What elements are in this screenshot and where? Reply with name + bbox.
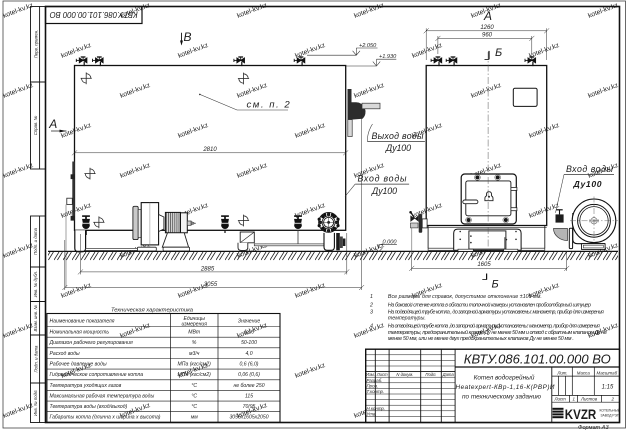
svg-text:1605: 1605: [477, 262, 491, 268]
svg-text:Разраб.: Разраб.: [367, 378, 383, 383]
svg-text:см. п. 2: см. п. 2: [247, 100, 292, 111]
svg-text:Ду100: Ду100: [371, 186, 397, 196]
svg-text:Б: Б: [495, 47, 502, 59]
svg-text:N докум.: N докум.: [396, 372, 413, 377]
svg-text:м3/ч: м3/ч: [189, 351, 200, 357]
svg-text:1: 1: [370, 294, 373, 300]
svg-text:4: 4: [370, 324, 373, 330]
svg-text:1260: 1260: [480, 25, 494, 31]
svg-text:Подп. и дата: Подп. и дата: [33, 345, 38, 373]
svg-text:мм: мм: [191, 415, 198, 421]
svg-text:0,06 (0,6): 0,06 (0,6): [238, 372, 260, 378]
svg-text:А: А: [483, 9, 492, 23]
svg-text:Максимальная рабочая температу: Максимальная рабочая температура воды: [50, 393, 155, 399]
svg-text:Температура уходящих газов: Температура уходящих газов: [50, 383, 122, 389]
svg-text:Расход воды: Расход воды: [50, 351, 80, 357]
svg-text:115: 115: [245, 393, 253, 399]
svg-text:Все размеры для справок, допус: Все размеры для справок, допустимое откл…: [388, 294, 542, 300]
svg-text:Номинальная мощность: Номинальная мощность: [50, 330, 110, 336]
svg-text:Справ. №: Справ. №: [33, 115, 38, 135]
svg-text:Температура воды (вход/выход): Температура воды (вход/выход): [50, 404, 128, 410]
svg-text:+1.930: +1.930: [379, 54, 397, 60]
svg-text:измерения: измерения: [181, 321, 207, 327]
svg-text:по техническому заданию: по техническому заданию: [462, 392, 541, 400]
svg-text:В: В: [184, 30, 192, 44]
svg-text:Ду100: Ду100: [573, 179, 602, 189]
svg-text:Гидравлическое сопротивление к: Гидравлическое сопротивление котла: [50, 372, 144, 378]
svg-text:1:15: 1:15: [602, 384, 614, 390]
svg-text:Инв. № дубл.: Инв. № дубл.: [33, 271, 38, 297]
svg-text:Пров.: Пров.: [367, 383, 379, 388]
svg-text:КОТЕЛЬНЫЙ: КОТЕЛЬНЫЙ: [600, 409, 621, 413]
svg-text:Н.контр.: Н.контр.: [367, 406, 386, 411]
svg-text:На подводящей трубе котла ,: На подводящей трубе котла , до запорной …: [388, 309, 604, 316]
svg-text:%: %: [192, 340, 197, 346]
svg-text:Утв.: Утв.: [367, 412, 377, 417]
svg-text:°С: °С: [191, 393, 197, 399]
svg-text:Б: Б: [492, 279, 499, 291]
svg-text:2: 2: [369, 302, 373, 308]
svg-text:МПа (кгс/см2): МПа (кгс/см2): [178, 362, 212, 368]
svg-text:Дата: Дата: [442, 372, 455, 377]
svg-text:Масштаб: Масштаб: [597, 370, 618, 375]
svg-text:КВТУ.086.101.00.000 ВО: КВТУ.086.101.00.000 ВО: [464, 351, 611, 366]
svg-text:0,6 (6,0): 0,6 (6,0): [240, 362, 259, 368]
svg-text:А: А: [48, 117, 57, 131]
svg-text:°С: °С: [191, 404, 197, 410]
svg-text:температуры.: температуры.: [388, 316, 426, 322]
svg-text:Техническая характеристика: Техническая характеристика: [111, 308, 194, 314]
svg-text:3055: 3055: [204, 282, 218, 288]
svg-text:Взам. инв. №: Взам. инв. №: [33, 305, 38, 332]
svg-text:Значение: Значение: [238, 318, 261, 324]
svg-text:Диапазон рабочего регулировани: Диапазон рабочего регулирования: [49, 340, 133, 346]
svg-text:температуры, предохранительный: температуры, предохранительный клапан Ду…: [388, 329, 607, 336]
svg-text:4,0: 4,0: [245, 351, 252, 357]
svg-text:2810: 2810: [202, 147, 217, 153]
svg-text:Подп.: Подп.: [425, 372, 436, 377]
svg-text:На боковой стенке котла в обла: На боковой стенке котла в области топочн…: [388, 301, 591, 308]
svg-text:Перв. примен.: Перв. примен.: [33, 30, 38, 59]
svg-text:Наименование показателя: Наименование показателя: [50, 318, 115, 324]
svg-text:Рабочее давление воды: Рабочее давление воды: [50, 362, 107, 368]
svg-text:Листов: Листов: [580, 397, 598, 402]
svg-text:KVZR: KVZR: [565, 406, 597, 422]
svg-text:Heatexpert-КВр-1,16-К(РВР)И: Heatexpert-КВр-1,16-К(РВР)И: [456, 384, 555, 391]
svg-text:не более 250: не более 250: [233, 383, 264, 389]
svg-text:Котел водогрейный: Котел водогрейный: [474, 373, 535, 381]
svg-text:МВт: МВт: [188, 330, 200, 336]
svg-text:960: 960: [482, 33, 493, 39]
svg-text:Т.контр.: Т.контр.: [367, 389, 385, 394]
svg-text:°С: °С: [191, 383, 197, 389]
svg-text:1,16: 1,16: [244, 330, 254, 336]
svg-text:Масса: Масса: [577, 370, 591, 375]
svg-text:0.000: 0.000: [383, 239, 398, 245]
svg-text:50-100: 50-100: [241, 340, 257, 346]
svg-text:Подп. и дата: Подп. и дата: [33, 227, 38, 255]
svg-text:Ду100: Ду100: [385, 143, 411, 153]
svg-text:Инв. № подл.: Инв. № подл.: [33, 389, 38, 416]
svg-text:70/95: 70/95: [243, 404, 256, 410]
svg-text:Лист: Лист: [554, 397, 567, 402]
svg-text:Изм.: Изм.: [366, 372, 375, 377]
svg-text:2: 2: [611, 397, 615, 402]
svg-text:Вход воды: Вход воды: [566, 164, 614, 174]
svg-text:Формат А3: Формат А3: [578, 425, 609, 430]
svg-text:КВТУ.086.101.00.000 ВО: КВТУ.086.101.00.000 ВО: [49, 10, 137, 20]
svg-text:3055х1605х2050: 3055х1605х2050: [229, 415, 268, 421]
svg-text:На отводящей трубе котла ,до з: На отводящей трубе котла ,до запорной ар…: [388, 323, 600, 330]
svg-text:2885: 2885: [200, 266, 215, 272]
svg-text:ЗАВОД РЭП: ЗАВОД РЭП: [601, 414, 620, 418]
svg-text:менее 50 мм, или не менее дву: менее 50 мм, или не менее двух предохран…: [388, 336, 574, 342]
svg-text:МПа (кгс/см2): МПа (кгс/см2): [178, 372, 212, 378]
svg-text:Габариты котла (длинна х ширин: Габариты котла (длинна х ширина х высота…: [50, 415, 161, 421]
svg-text:3: 3: [370, 310, 373, 316]
svg-text:Вход воды: Вход воды: [358, 174, 408, 184]
svg-text:Лист: Лист: [376, 372, 388, 377]
svg-text:Выход воды: Выход воды: [372, 131, 425, 141]
svg-text:+2.050: +2.050: [359, 43, 377, 49]
svg-text:Лит.: Лит.: [556, 370, 567, 375]
